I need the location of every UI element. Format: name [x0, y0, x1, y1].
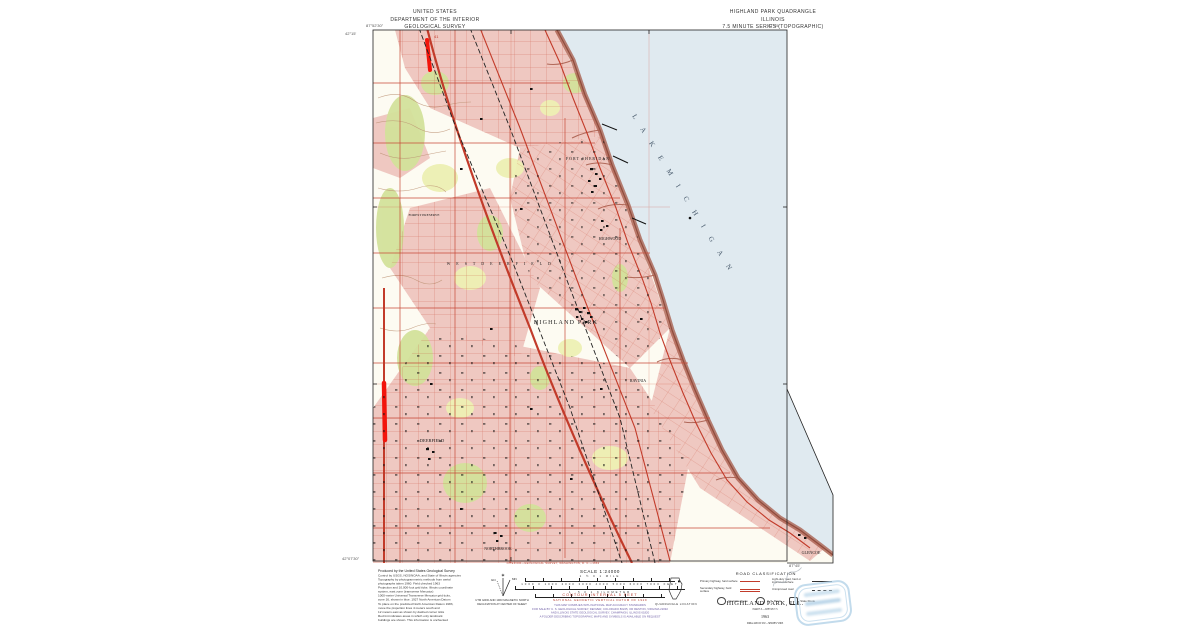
- primary-highway-label: Primary highway, hard surface: [700, 580, 738, 583]
- produced-by-line: Produced by the United States Geological…: [378, 569, 498, 574]
- ravinia-label: RAVINIA: [630, 378, 646, 383]
- grid-north-label: GN: [491, 578, 496, 582]
- agency-line-2: DEPARTMENT OF THE INTERIOR: [370, 17, 500, 25]
- west-deerfield-label: W E S T D E E R F I E L D: [447, 261, 554, 266]
- survey-imprint: INTERIOR—GEOLOGICAL SURVEY, WASHINGTON, …: [498, 562, 608, 565]
- page: UNITED STATES DEPARTMENT OF THE INTERIOR…: [0, 0, 1200, 630]
- sale-line-3: A FOLDER DESCRIBING TOPOGRAPHIC MAPS AND…: [520, 615, 680, 619]
- topographic-map-body: L A K E M I C H I G A N HIGHLAND PARK FO…: [370, 28, 838, 570]
- contour-interval-note: CONTOUR INTERVAL 5 FEET: [530, 593, 670, 597]
- northbrook-label: NORTHBROOK: [484, 546, 512, 551]
- secondary-highway-label: Secondary highway, hard surface: [700, 587, 738, 594]
- corner-coord-sw-lat: 42°07'30": [342, 556, 359, 561]
- glencoe-label: GLENCOE: [802, 550, 821, 555]
- fort-sheridan-label: FORT SHERIDAN: [566, 156, 610, 161]
- deerfield-label: DEERFIELD: [420, 438, 445, 443]
- secondary-highway-sample: [740, 589, 760, 591]
- corner-coord-nw-lat: 42°15': [345, 31, 356, 36]
- illinois-locator-map: [666, 577, 684, 601]
- quad-location-dot: [678, 581, 680, 583]
- quad-name: HIGHLAND PARK QUADRANGLE: [698, 9, 848, 17]
- road-class-title: ROAD CLASSIFICATION: [700, 571, 832, 576]
- agency-line-1: UNITED STATES: [370, 9, 500, 17]
- library-date-stamp: [793, 579, 854, 628]
- forest-preserve-label: FOREST PRESERVE: [408, 213, 439, 217]
- highland-park-label: HIGHLAND PARK: [534, 320, 598, 326]
- highwood-label: HIGHWOOD: [599, 236, 622, 241]
- route-41-label: 41: [434, 34, 439, 39]
- water-crib-mark: [689, 217, 692, 220]
- quad-location-caption: QUADRANGLE LOCATION: [646, 602, 706, 606]
- primary-highway-sample: [740, 581, 760, 582]
